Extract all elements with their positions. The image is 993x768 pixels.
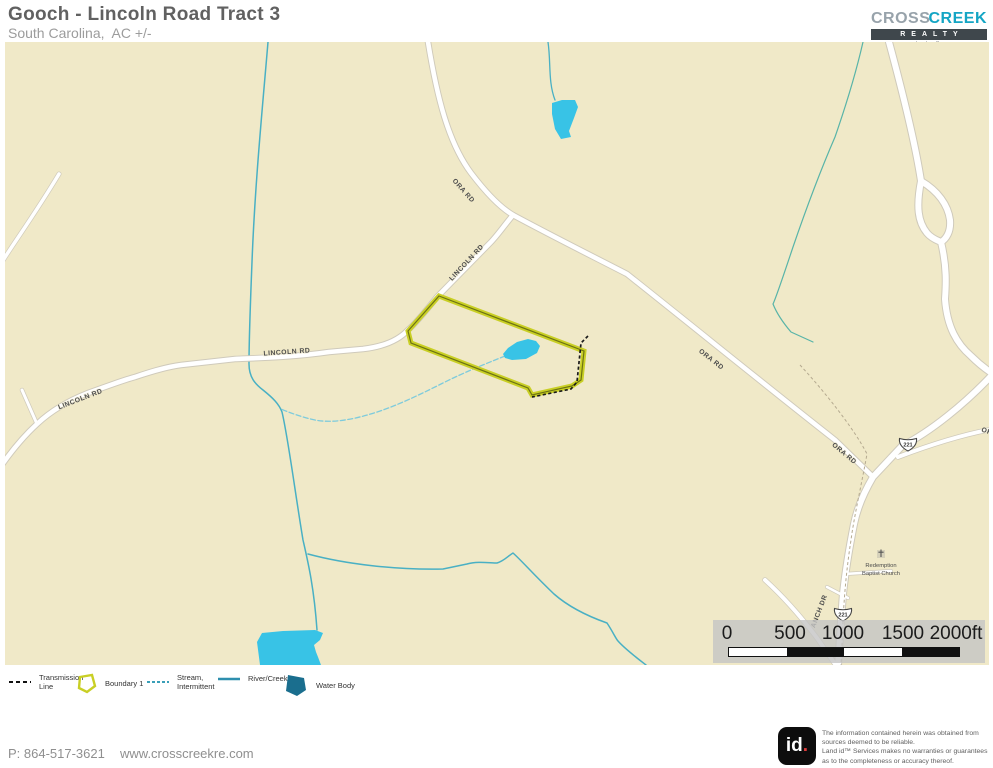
water-body-bottom-left [257, 630, 323, 665]
disclaimer-line1: The information contained herein was obt… [822, 729, 987, 738]
disclaimer-line2: sources deemed to be reliable. [822, 738, 987, 747]
water-body-icon [283, 673, 309, 699]
scale-tick-0: 0 [722, 623, 733, 645]
land-id-logo: id. [778, 727, 816, 765]
legend-label: River/Creek [248, 674, 288, 683]
route-221-shield-1-text: 221 [903, 443, 912, 449]
page: Gooch - Lincoln Road Tract 3 South Carol… [0, 0, 993, 768]
logo-cross-text: CROSS [871, 10, 930, 28]
legend-label: Water Body [316, 681, 355, 690]
scale-tick-500: 500 [774, 623, 806, 645]
land-id-logo-dot: . [803, 735, 808, 757]
transmission-line-icon [8, 676, 32, 688]
logo-realty-bar: REALTY [871, 29, 987, 40]
road-lincoln-rd [5, 215, 513, 466]
disclaimer-line4: as to the completeness or accuracy there… [822, 757, 987, 766]
boundary-icon [76, 673, 98, 695]
water-bodies [257, 100, 578, 665]
page-subtitle: South Carolina, AC +/- [8, 25, 152, 41]
page-title: Gooch - Lincoln Road Tract 3 [8, 4, 280, 26]
label-lincoln-rd-3: LINCOLN RD [57, 388, 103, 411]
logo-creek-text: CREEK [928, 10, 987, 28]
legend-item-water-body: Water Body [283, 673, 355, 699]
cross-creek-realty-logo: CROSS CREEK REALTY L L C [871, 6, 987, 47]
church-label-line1: Redemption [865, 563, 896, 569]
boundary-tract-3 [408, 296, 584, 395]
legend-label: Stream, Intermittent [177, 673, 215, 692]
map-canvas: ORA RD ORA RD ORA RD ORA RD LINCOLN RD L… [5, 42, 989, 665]
road-branch-sw [22, 390, 37, 424]
footer-phone: P: 864-517-3621 [8, 746, 105, 761]
legend-label: Boundary 1 [105, 679, 143, 688]
scale-bar: 0 500 1000 1500 2000ft [713, 620, 985, 663]
scale-tick-1500: 1500 [882, 623, 924, 645]
label-ora-rd-1: ORA RD [451, 178, 476, 205]
scale-bar-segments [728, 647, 960, 657]
land-id-logo-text: id [786, 735, 803, 757]
legend-text-line1: Boundary 1 [105, 679, 143, 688]
pond-in-tract [503, 339, 540, 360]
disclaimer-line3: Land id™ Services makes no warranties or… [822, 747, 987, 756]
legend-text-line1: Water Body [316, 681, 355, 690]
river-creek-icon [217, 673, 241, 685]
footer-disclaimer: The information contained herein was obt… [822, 729, 987, 766]
road-ora-rd [428, 42, 872, 476]
legend-text-line1: River/Creek [248, 674, 288, 683]
road-casings [5, 42, 989, 665]
label-ora-rd-4: ORA RD [980, 427, 989, 443]
legend-text-line2: Intermittent [177, 682, 215, 691]
legend-item-transmission-line: Transmission Line [8, 673, 83, 692]
map-svg: ORA RD ORA RD ORA RD ORA RD LINCOLN RD L… [5, 42, 989, 665]
scale-tick-2000: 2000ft [930, 623, 983, 645]
logo-wordmark: CROSS CREEK [871, 6, 987, 28]
legend-item-stream-intermittent: Stream, Intermittent [146, 673, 215, 692]
legend-text-line1: Stream, [177, 673, 215, 682]
church-poi: Redemption Baptist Church [862, 550, 900, 578]
legend-item-boundary-1: Boundary 1 [76, 673, 143, 695]
label-lincoln-rd-1: LINCOLN RD [448, 243, 485, 282]
roads [5, 42, 989, 665]
scale-tick-1000: 1000 [822, 623, 864, 645]
pond-top [552, 100, 578, 139]
stream-intermittent-icon [146, 676, 170, 688]
map-legend: Transmission Line Boundary 1 Stream, Int… [0, 665, 993, 710]
church-label-line2: Baptist Church [862, 571, 900, 577]
route-221-shield-2-text: 221 [838, 613, 847, 619]
legend-item-river-creek: River/Creek [217, 673, 288, 685]
footer-website-link[interactable]: www.crosscreekre.com [120, 746, 254, 761]
